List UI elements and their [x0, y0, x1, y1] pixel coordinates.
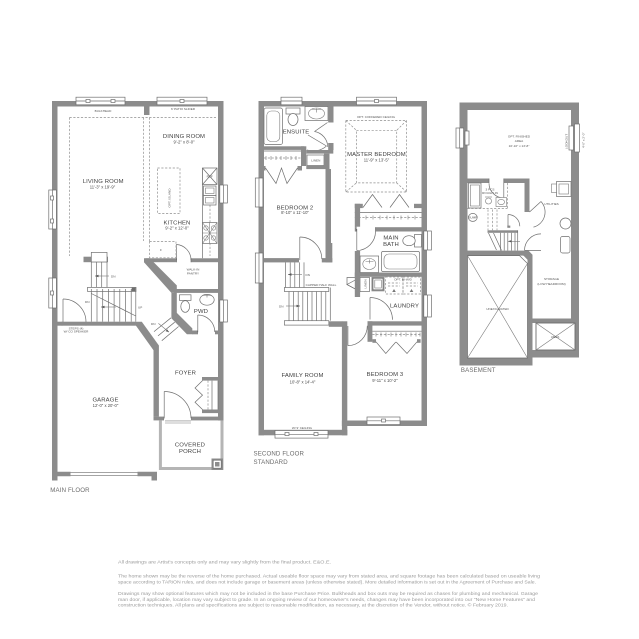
svg-text:W/ 9' CEILING: W/ 9' CEILING — [292, 426, 313, 430]
svg-text:DN: DN — [279, 305, 283, 309]
svg-text:BULKHEAD: BULKHEAD — [95, 109, 112, 113]
svg-text:AREA: AREA — [515, 139, 524, 143]
svg-text:REF: REF — [207, 175, 213, 179]
svg-text:ENSUITE: ENSUITE — [283, 130, 310, 136]
svg-text:UNEXCAVATED: UNEXCAVATED — [486, 307, 509, 311]
svg-text:6' PATIO SLIDER: 6' PATIO SLIDER — [171, 107, 196, 111]
svg-text:STORAGE: STORAGE — [544, 277, 559, 281]
svg-text:LINEN: LINEN — [364, 279, 368, 288]
svg-text:man door, if applicable, locat: man door, if applicable, location may va… — [118, 597, 535, 603]
svg-text:Drawings may show optional fea: Drawings may show optional features whic… — [118, 591, 538, 597]
svg-text:9'-2" x 12'-0": 9'-2" x 12'-0" — [165, 226, 189, 231]
svg-text:UTILITIES: UTILITIES — [544, 202, 558, 206]
svg-text:UNEX.: UNEX. — [551, 335, 561, 339]
svg-text:DN: DN — [306, 273, 310, 277]
svg-text:FOYER: FOYER — [175, 371, 196, 377]
svg-text:construction techniques. All p: construction techniques. All plans and s… — [118, 602, 508, 609]
svg-text:PORCH: PORCH — [179, 449, 201, 455]
svg-text:STANDARD: STANDARD — [254, 459, 289, 466]
svg-text:W/ CO SPEAKER: W/ CO SPEAKER — [64, 330, 90, 334]
svg-text:BATH: BATH — [383, 242, 399, 248]
svg-text:11'-9" x 13'-5": 11'-9" x 13'-5" — [364, 158, 390, 163]
svg-text:OPT. BI-W/D: OPT. BI-W/D — [394, 278, 412, 282]
svg-text:ROUGH-IN: ROUGH-IN — [482, 191, 498, 195]
svg-text:(LOW HEADROOM): (LOW HEADROOM) — [537, 282, 565, 286]
svg-text:PANTRY: PANTRY — [187, 272, 199, 276]
svg-text:F: F — [160, 248, 162, 252]
svg-text:9'-2" x 8'-0": 9'-2" x 8'-0" — [173, 140, 195, 145]
svg-text:LAUNDRY: LAUNDRY — [390, 304, 419, 310]
svg-text:BASEMENT: BASEMENT — [461, 367, 496, 374]
svg-text:LOOKOUT: LOOKOUT — [565, 134, 569, 149]
svg-text:LINEN: LINEN — [311, 159, 320, 163]
svg-text:All drawings are Artist's conc: All drawings are Artist's concepts only … — [118, 560, 331, 566]
svg-text:9'-11" x 10'-2": 9'-11" x 10'-2" — [372, 378, 398, 383]
svg-text:space according to TARiON rule: space according to TARiON rules, and doe… — [118, 580, 536, 586]
svg-text:SECOND FLOOR: SECOND FLOOR — [254, 450, 305, 457]
svg-text:COVERED: COVERED — [175, 443, 205, 449]
svg-text:OPT. ISLAND: OPT. ISLAND — [168, 188, 172, 208]
svg-text:DN: DN — [85, 300, 89, 304]
svg-text:PWD: PWD — [194, 309, 208, 315]
svg-text:SUMP: SUMP — [468, 215, 477, 219]
svg-text:OPT. FINISHED: OPT. FINISHED — [508, 135, 531, 139]
svg-text:12'-0" x 20'-0": 12'-0" x 20'-0" — [93, 403, 119, 408]
svg-text:4'-0" x 2'-0": 4'-0" x 2'-0" — [582, 132, 586, 148]
svg-text:DN: DN — [151, 322, 155, 326]
svg-text:DN: DN — [111, 275, 115, 279]
svg-text:UP: UP — [138, 306, 142, 310]
svg-text:The home shown may be the reve: The home shown may be the reverse of the… — [118, 574, 540, 580]
svg-text:10'-8" x 14'-4": 10'-8" x 14'-4" — [290, 380, 316, 385]
svg-text:11'-3" x 19'-9": 11'-3" x 19'-9" — [90, 184, 116, 189]
svg-text:MAIN FLOOR: MAIN FLOOR — [50, 487, 90, 494]
svg-text:MAIN: MAIN — [383, 236, 398, 242]
svg-text:OPT. COFFERED CEILING: OPT. COFFERED CEILING — [357, 115, 396, 119]
svg-text:8'-10" x 11'-10": 8'-10" x 11'-10" — [281, 210, 309, 215]
svg-text:CAPPED HALF WALL: CAPPED HALF WALL — [306, 283, 337, 287]
svg-text:FAMILY ROOM: FAMILY ROOM — [281, 373, 323, 379]
svg-text:10'-10" x 13'-8": 10'-10" x 13'-8" — [509, 144, 530, 148]
